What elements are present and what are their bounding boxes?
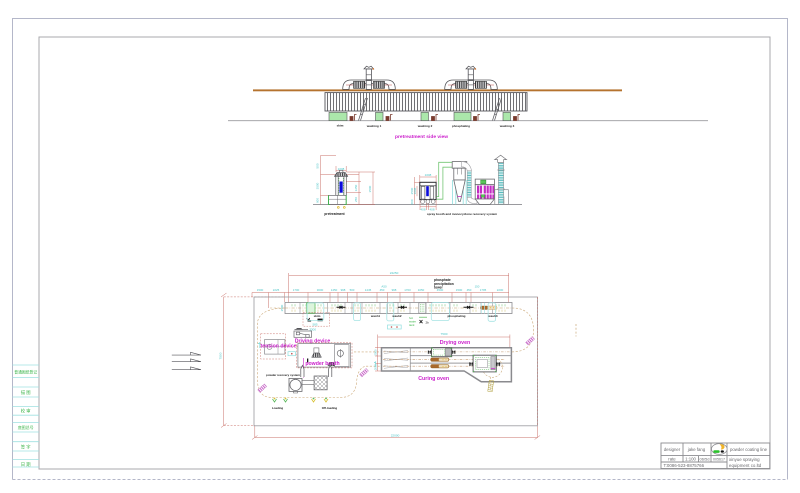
- svg-text:500: 500: [316, 163, 320, 168]
- svg-text:1795: 1795: [480, 288, 487, 292]
- svg-text:450: 450: [467, 288, 472, 292]
- svg-text:005617: 005617: [713, 458, 725, 462]
- svg-text:1500: 1500: [456, 288, 463, 292]
- svg-text:pretreatment side view: pretreatment side view: [395, 134, 448, 140]
- svg-text:powder coating line: powder coating line: [730, 447, 768, 452]
- svg-text:校 审: 校 审: [21, 408, 31, 415]
- svg-text:wash2: wash2: [391, 314, 402, 318]
- svg-text:1445: 1445: [365, 288, 372, 292]
- svg-text:washing 3: washing 3: [499, 124, 515, 128]
- svg-text:skim: skim: [314, 314, 321, 318]
- svg-text:Curing oven: Curing oven: [418, 376, 449, 382]
- svg-text:xinyue spraying: xinyue spraying: [729, 457, 760, 462]
- svg-text:equipment co.ltd: equipment co.ltd: [729, 463, 762, 468]
- svg-text:washing 1: washing 1: [366, 124, 382, 128]
- svg-text:tension device: tension device: [260, 343, 296, 349]
- svg-text:998: 998: [341, 288, 346, 292]
- svg-text:150: 150: [475, 285, 480, 289]
- svg-text:3500: 3500: [368, 185, 372, 192]
- svg-text:签 字: 签 字: [21, 443, 31, 449]
- svg-text:A50: A50: [381, 285, 387, 289]
- svg-text:wash3: wash3: [487, 314, 498, 318]
- svg-text:T:0086-523-8875766: T:0086-523-8875766: [664, 463, 705, 468]
- svg-text:tank: tank: [409, 323, 415, 327]
- svg-text:powder booth: powder booth: [305, 361, 339, 367]
- svg-text:7500: 7500: [219, 352, 223, 359]
- svg-text:24250: 24250: [390, 271, 399, 275]
- svg-text:2b: 2b: [426, 321, 430, 325]
- svg-text:1700: 1700: [293, 288, 300, 292]
- svg-text:408: 408: [420, 208, 425, 212]
- svg-text:1050: 1050: [418, 288, 425, 292]
- svg-text:2000: 2000: [374, 349, 378, 356]
- svg-text:Off-loading: Off-loading: [322, 406, 338, 410]
- svg-text:7500: 7500: [441, 332, 448, 336]
- svg-text:powder recovery system: powder recovery system: [266, 373, 300, 377]
- svg-text:Loading: Loading: [272, 406, 283, 410]
- svg-text:phosphating: phosphating: [448, 314, 466, 318]
- svg-text:998: 998: [392, 288, 397, 292]
- svg-text:1500: 1500: [257, 288, 264, 292]
- svg-text:2225: 2225: [273, 288, 280, 292]
- svg-text:1250: 1250: [354, 184, 358, 191]
- svg-text:phosphating: phosphating: [452, 124, 470, 128]
- svg-text:普通图纸登记: 普通图纸登记: [14, 369, 37, 374]
- svg-text:tower: tower: [434, 286, 444, 290]
- svg-text:1700: 1700: [404, 288, 411, 292]
- svg-text:2200: 2200: [497, 288, 504, 292]
- svg-text:3000: 3000: [317, 288, 324, 292]
- svg-text:500: 500: [350, 288, 355, 292]
- svg-text:skim: skim: [337, 124, 344, 128]
- svg-text:描 图: 描 图: [21, 389, 31, 396]
- svg-text:600: 600: [316, 198, 320, 203]
- svg-text:1008: 1008: [425, 173, 432, 177]
- svg-text:Drying oven: Drying oven: [440, 340, 471, 346]
- svg-text:pretreatment: pretreatment: [324, 212, 345, 216]
- svg-text:wash1: wash1: [370, 314, 381, 318]
- svg-text:250: 250: [354, 197, 358, 202]
- svg-text:spray booth and monocyclone re: spray booth and monocyclone recovery sys…: [427, 212, 497, 216]
- svg-text:1:100: 1:100: [685, 457, 696, 462]
- svg-text:600: 600: [410, 199, 414, 204]
- svg-text:1008: 1008: [413, 187, 417, 194]
- svg-text:585: 585: [312, 322, 317, 326]
- svg-text:washing 2: washing 2: [417, 124, 433, 128]
- svg-text:2500: 2500: [280, 304, 284, 311]
- svg-text:rate: rate: [668, 457, 676, 462]
- svg-text:1450: 1450: [331, 288, 338, 292]
- svg-text:22000: 22000: [391, 434, 400, 438]
- svg-text:jake fang: jake fang: [687, 447, 706, 452]
- svg-text:06/5d: 06/5d: [699, 457, 709, 462]
- svg-text:底图总号: 底图总号: [18, 424, 34, 430]
- svg-text:designer: designer: [664, 447, 681, 452]
- svg-text:3500: 3500: [316, 182, 320, 189]
